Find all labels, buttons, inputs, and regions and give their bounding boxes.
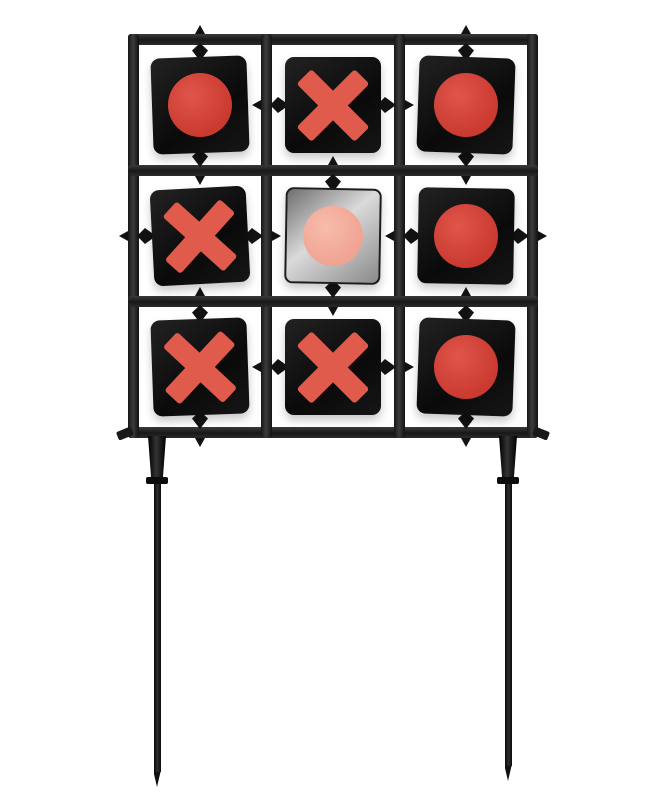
target-paddle-r1-c1 xyxy=(284,187,382,285)
spindle-tip-below-r2-c0 xyxy=(195,438,205,447)
red-circle-symbol-r1-c2 xyxy=(433,203,498,268)
frame-end-tab-left xyxy=(116,426,134,440)
spindle-tip-below-r1-c1 xyxy=(328,307,338,316)
target-paddle-r0-c1 xyxy=(285,57,381,153)
spindle-tip-right-r1-c2 xyxy=(538,231,547,241)
left-stake-tip xyxy=(154,772,161,787)
spindle-tip-above-r0-c2 xyxy=(461,25,471,34)
spindle-tip-below-r0-c2 xyxy=(461,176,471,185)
spindle-tip-right-r2-c1 xyxy=(405,362,414,372)
target-paddle-r2-c0 xyxy=(150,317,249,416)
red-circle-symbol-r0-c0 xyxy=(167,72,233,138)
spindle-tip-right-r1-c0 xyxy=(272,231,281,241)
spindle-tip-left-r2-c1 xyxy=(252,362,261,372)
target-paddle-r0-c0 xyxy=(150,55,249,154)
spindle-tip-left-r1-c0 xyxy=(119,231,128,241)
right-stake-collar xyxy=(497,477,519,484)
target-paddle-r1-c0 xyxy=(150,186,251,287)
spindle-tip-below-r0-c0 xyxy=(195,176,205,185)
target-paddle-r1-c2 xyxy=(417,187,515,285)
red-circle-symbol-r2-c2 xyxy=(433,334,499,400)
left-stake-sleeve xyxy=(148,436,166,480)
spindle-tip-above-r1-c1 xyxy=(328,156,338,165)
spindle-tip-left-r1-c2 xyxy=(385,231,394,241)
spindle-tip-below-r2-c2 xyxy=(461,438,471,447)
frame-end-tab-right xyxy=(532,426,550,440)
target-paddle-r0-c2 xyxy=(416,55,515,154)
right-stake-rod xyxy=(505,484,512,766)
left-stake-rod xyxy=(154,484,161,772)
spindle-tip-above-r2-c0 xyxy=(195,287,205,296)
spindle-tip-left-r0-c1 xyxy=(252,100,261,110)
spindle-tip-above-r2-c2 xyxy=(461,287,471,296)
pink-circle-symbol-r1-c1 xyxy=(302,205,363,266)
spindle-tip-right-r0-c1 xyxy=(405,100,414,110)
frame-rail-bottom xyxy=(128,427,538,438)
red-circle-symbol-r0-c2 xyxy=(433,72,499,138)
left-stake-collar xyxy=(146,477,168,484)
frame-rail-top xyxy=(128,34,538,45)
right-stake-sleeve xyxy=(499,436,517,480)
target-paddle-r2-c1 xyxy=(285,319,381,415)
product-photo xyxy=(0,0,667,804)
spindle-tip-above-r0-c0 xyxy=(195,25,205,34)
target-paddle-r2-c2 xyxy=(416,317,515,416)
right-stake-tip xyxy=(505,766,512,781)
